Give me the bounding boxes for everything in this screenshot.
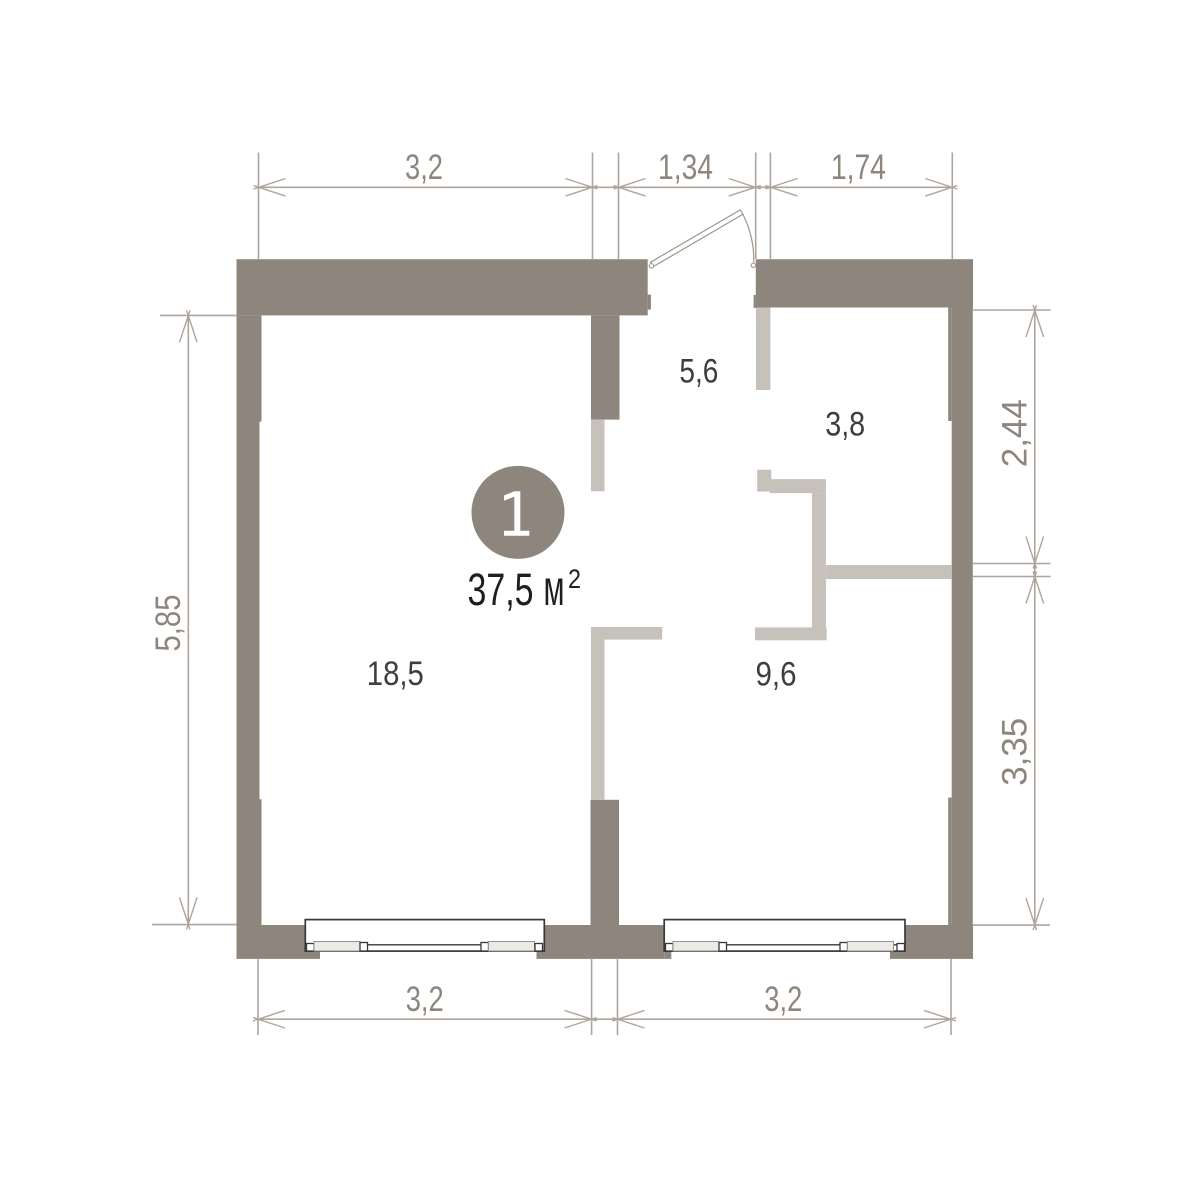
svg-text:37,5: 37,5 [468, 564, 534, 615]
svg-text:5,6: 5,6 [679, 353, 718, 391]
svg-text:3,2: 3,2 [764, 980, 802, 1019]
svg-text:5,85: 5,85 [149, 595, 188, 652]
svg-text:1,74: 1,74 [831, 148, 886, 187]
svg-text:1,34: 1,34 [658, 148, 713, 187]
svg-text:м: м [544, 560, 565, 616]
svg-text:2,44: 2,44 [996, 399, 1035, 467]
svg-text:18,5: 18,5 [367, 655, 424, 693]
svg-text:3,2: 3,2 [406, 980, 444, 1019]
svg-text:3,35: 3,35 [996, 718, 1035, 786]
svg-text:9,6: 9,6 [756, 655, 797, 693]
svg-text:3,8: 3,8 [825, 405, 865, 443]
svg-text:2: 2 [568, 564, 581, 594]
svg-text:3,2: 3,2 [405, 148, 443, 187]
